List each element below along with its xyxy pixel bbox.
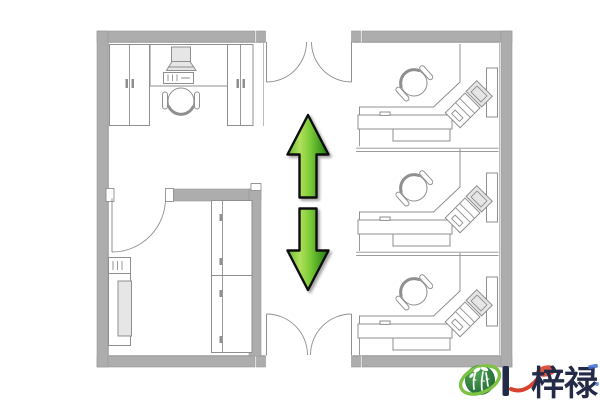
bottom-door-swing-arcs <box>267 314 352 355</box>
workstation-area <box>356 44 499 355</box>
interior-door <box>112 199 166 253</box>
storage-cabinet-top <box>212 201 253 276</box>
top-door-frame-right <box>352 31 361 42</box>
top-door-frame-left <box>257 31 266 42</box>
wardrobe-right <box>228 45 254 126</box>
workstation-1 <box>358 44 498 146</box>
door-swing-arc <box>112 199 166 253</box>
top-left-office <box>110 45 254 126</box>
interior-wall-top-cap <box>251 184 261 191</box>
right-wall <box>501 31 512 367</box>
brand-name: 梓禄 <box>531 365 599 400</box>
top-wall-right-segment <box>362 31 512 42</box>
office-chair <box>163 88 200 114</box>
top-door-swing-arcs <box>267 42 352 82</box>
green-arrow-up-icon <box>288 115 329 198</box>
bottom-door-frame-right <box>352 356 361 367</box>
watermark: 梓禄 <box>456 360 599 400</box>
office-floor-plan: 梓禄 <box>0 0 600 400</box>
side-cabinet-unit <box>109 258 132 346</box>
interior-door-hinge-post <box>106 189 114 202</box>
green-arrow-down-icon <box>288 209 329 291</box>
top-wall-left-segment <box>97 31 255 42</box>
bottom-wall-left-segment <box>97 356 255 367</box>
bottom-double-door <box>267 314 352 356</box>
top-double-door <box>267 42 352 82</box>
floor-plan-canvas: 梓禄 <box>0 0 600 400</box>
wardrobe-left <box>110 45 150 126</box>
workstation-2 <box>358 149 498 251</box>
blue-dot-accent <box>595 382 599 386</box>
desk-keyboard <box>164 73 194 84</box>
bottom-door-frame-left <box>257 356 266 367</box>
brand-divider-bar <box>503 366 510 396</box>
storage-cabinet-bottom <box>212 276 253 353</box>
bottom-left-room <box>109 199 253 353</box>
corridor-arrows <box>288 115 329 290</box>
interior-wall-end-cap <box>166 189 174 202</box>
interior-wall-horizontal <box>173 189 261 201</box>
workstation-3 <box>358 253 498 355</box>
